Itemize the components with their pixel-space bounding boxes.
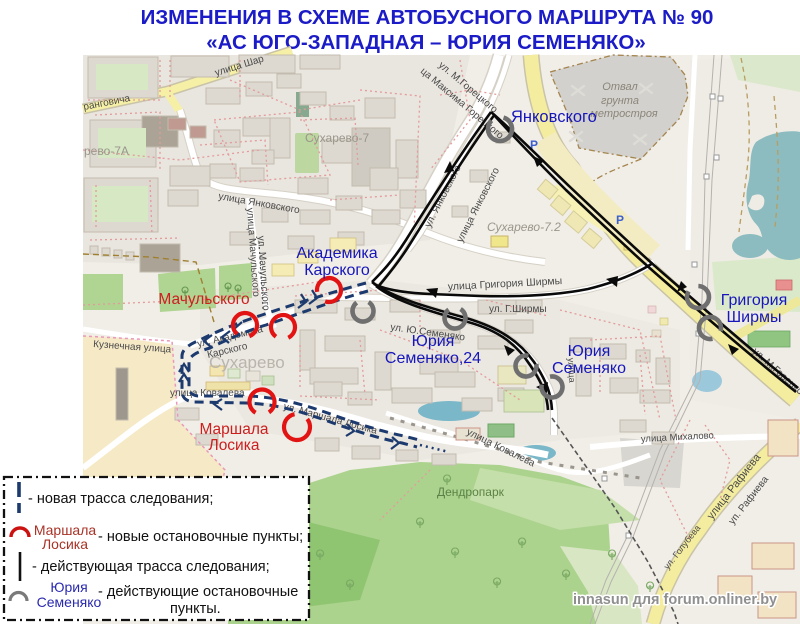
svg-text:Сухарево: Сухарево: [209, 353, 285, 372]
svg-text:Юрия: Юрия: [412, 333, 455, 350]
svg-text:Семеняко: Семеняко: [37, 594, 102, 610]
svg-text:- действующие остановочные: - действующие остановочные: [98, 584, 298, 600]
svg-text:Сухарево-7.2: Сухарево-7.2: [487, 220, 561, 234]
svg-text:Семеняко: Семеняко: [552, 360, 626, 377]
svg-text:Р: Р: [616, 213, 624, 227]
svg-text:Юрия: Юрия: [50, 579, 87, 595]
svg-text:innasun для forum.onliner.by: innasun для forum.onliner.by: [573, 592, 777, 608]
svg-text:- новая трасса следования;: - новая трасса следования;: [28, 491, 213, 507]
svg-text:ИЗМЕНЕНИЯ В СХЕМЕ АВТОБУСНОГО: ИЗМЕНЕНИЯ В СХЕМЕ АВТОБУСНОГО МАРШРУТА №…: [141, 6, 714, 29]
svg-text:Дендропарк: Дендропарк: [437, 485, 505, 499]
svg-text:грунта: грунта: [601, 95, 639, 107]
svg-text:Лосика: Лосика: [209, 437, 260, 454]
svg-text:рево-7А: рево-7А: [84, 144, 129, 158]
svg-text:Янковского: Янковского: [511, 108, 597, 126]
svg-text:пункты.: пункты.: [170, 601, 221, 617]
svg-text:Академика: Академика: [296, 245, 377, 262]
svg-text:Маршала: Маршала: [199, 421, 268, 438]
svg-text:Юрия: Юрия: [568, 343, 611, 360]
svg-text:Отвал: Отвал: [602, 81, 637, 93]
svg-text:Семеняко,24: Семеняко,24: [385, 350, 481, 367]
svg-text:Карского: Карского: [304, 262, 370, 279]
svg-text:Сухарево-7: Сухарево-7: [305, 131, 369, 145]
svg-text:Григория: Григория: [721, 292, 787, 309]
svg-text:Лосика: Лосика: [42, 536, 88, 552]
svg-text:Ширмы: Ширмы: [727, 309, 782, 326]
svg-text:Мачульского: Мачульского: [158, 291, 249, 308]
svg-text:- действующая трасса следовани: - действующая трасса следования;: [32, 559, 270, 575]
svg-text:метростроя: метростроя: [590, 108, 657, 120]
svg-text:- новые остановочные пункты;: - новые остановочные пункты;: [98, 529, 303, 545]
svg-text:ул. Г.Ширмы: ул. Г.Ширмы: [489, 304, 547, 315]
svg-text:«АС ЮГО-ЗАПАДНАЯ – ЮРИЯ СЕМЕНЯ: «АС ЮГО-ЗАПАДНАЯ – ЮРИЯ СЕМЕНЯКО»: [206, 31, 645, 54]
